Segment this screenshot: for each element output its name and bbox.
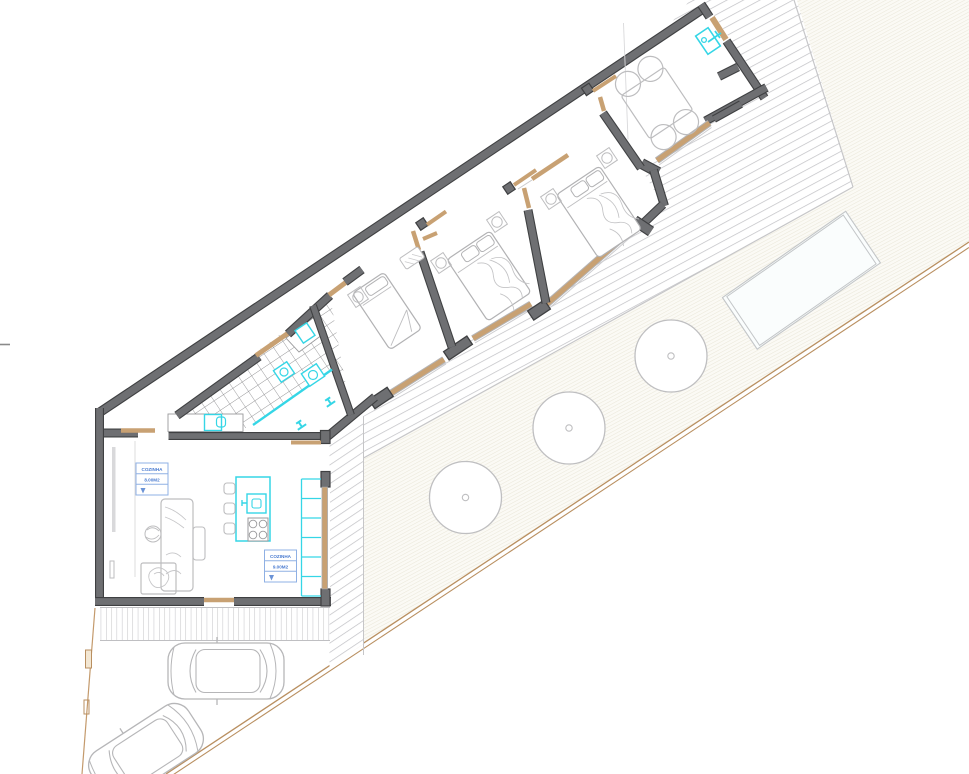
svg-text:8.00M2: 8.00M2 xyxy=(144,478,160,483)
svg-text:9.00M2: 9.00M2 xyxy=(273,565,289,570)
svg-text:COZINHA: COZINHA xyxy=(142,467,164,472)
svg-text:COZINHA: COZINHA xyxy=(270,554,292,559)
